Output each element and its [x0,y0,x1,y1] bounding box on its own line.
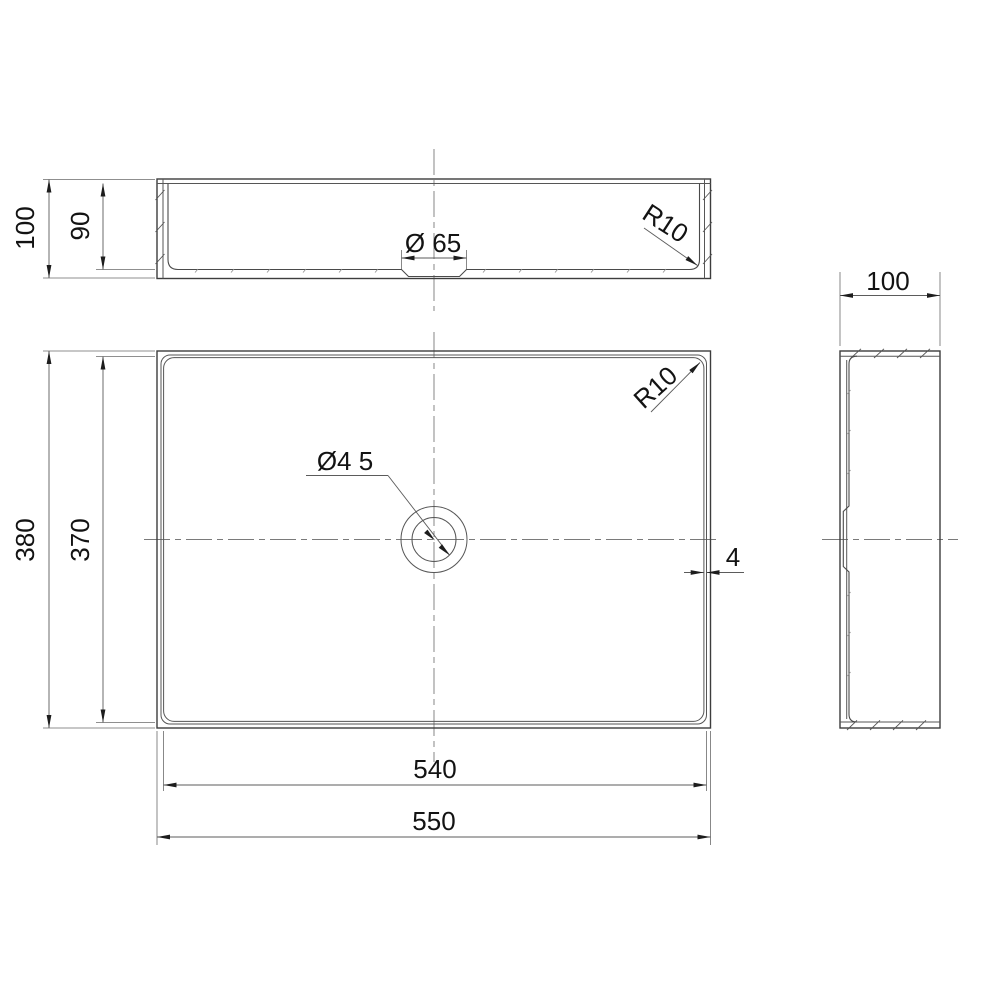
dim-label-plan-wall-thickness: 4 [726,542,740,572]
dim-plan-overall-length: 550 [157,731,711,845]
dim-label-front-recess-diameter: Ø 65 [405,228,461,258]
dim-front-inner-depth: 90 [65,184,155,270]
side-view: 100 [822,266,958,730]
dim-plan-wall-thickness: 4 [684,542,744,573]
plan-view: Ø4 5 R10 4 380 370 [10,332,744,845]
dim-side-overall-depth: 100 [840,266,940,346]
front-view: 100 90 Ø 65 R10 [10,149,712,311]
drain-dim-arrow-2 [439,544,450,555]
dim-front-recess-diameter: Ø 65 [402,228,467,269]
dim-label-plan-inner-width: 370 [65,518,95,561]
sink-technical-drawing: 100 90 Ø 65 R10 [0,0,1000,1000]
dim-label-plan-overall-length: 550 [412,806,455,836]
dim-label-plan-drain-diameter: Ø4 5 [317,446,373,476]
dim-label-front-inner-depth: 90 [65,212,95,241]
dim-plan-inner-length: 540 [164,731,707,791]
drain-dim-arrow-1 [424,530,435,541]
dim-plan-drain-diameter: Ø4 5 [306,446,450,555]
dim-plan-inner-width: 370 [65,357,155,723]
dim-label-front-corner-radius: R10 [637,198,693,249]
dim-label-plan-overall-width: 380 [10,518,40,561]
dim-label-plan-inner-length: 540 [413,754,456,784]
drawing-sheet: 100 90 Ø 65 R10 [0,0,1000,1000]
dim-label-front-overall-height: 100 [10,206,40,249]
dim-label-plan-corner-radius: R10 [628,360,684,414]
dim-label-side-overall-depth: 100 [866,266,909,296]
callout-front-corner-radius: R10 [637,198,697,266]
callout-plan-corner-radius: R10 [628,360,700,414]
